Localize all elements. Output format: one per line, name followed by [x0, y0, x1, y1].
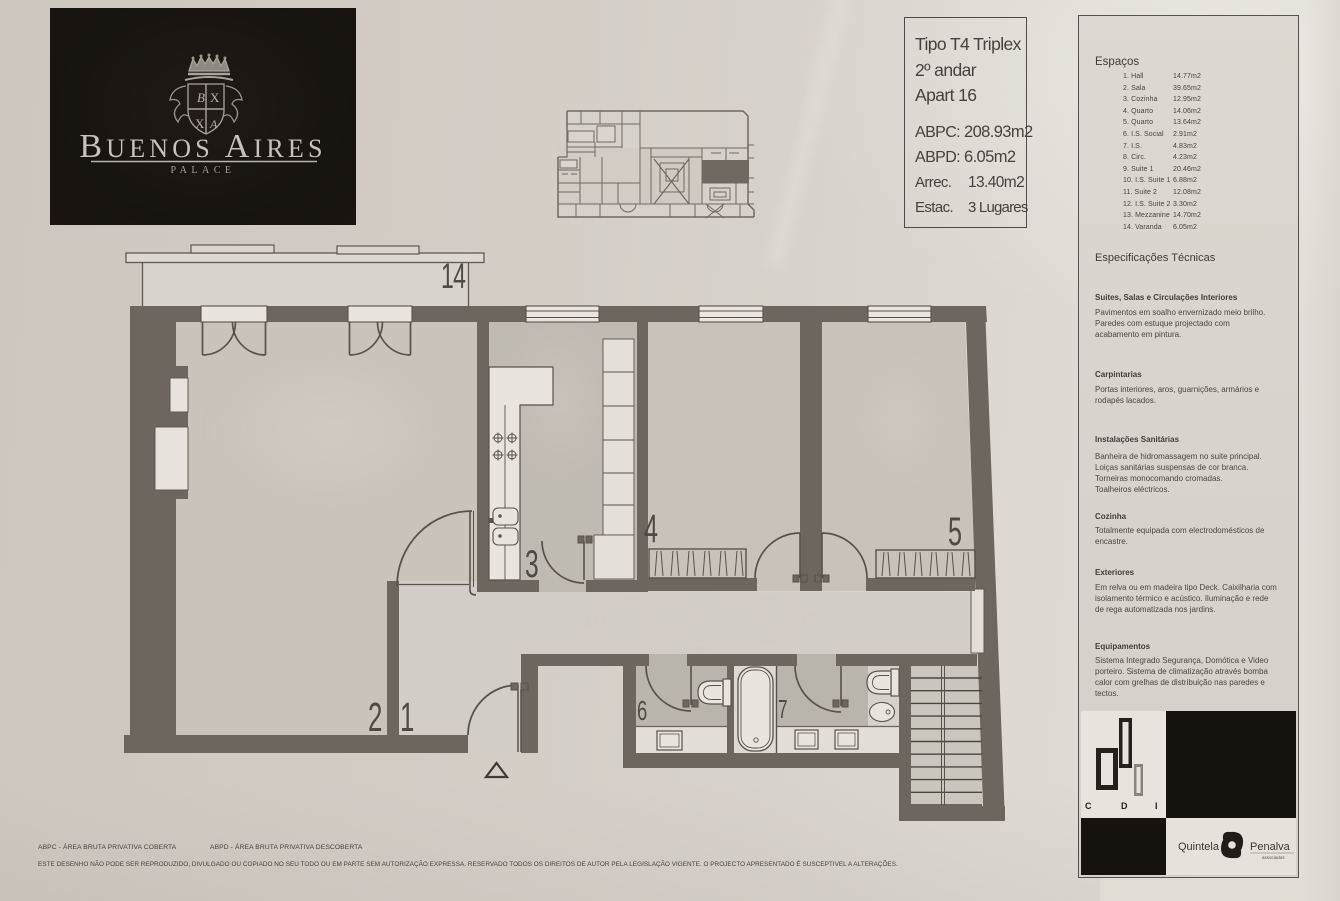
svg-text:4: 4 [644, 507, 658, 551]
svg-text:5: 5 [948, 510, 962, 554]
svg-text:1: 1 [400, 695, 414, 740]
svg-text:7: 7 [778, 694, 788, 724]
svg-text:6: 6 [637, 696, 647, 727]
svg-text:2: 2 [368, 695, 382, 740]
svg-text:14: 14 [441, 257, 466, 296]
svg-text:3: 3 [525, 541, 539, 585]
